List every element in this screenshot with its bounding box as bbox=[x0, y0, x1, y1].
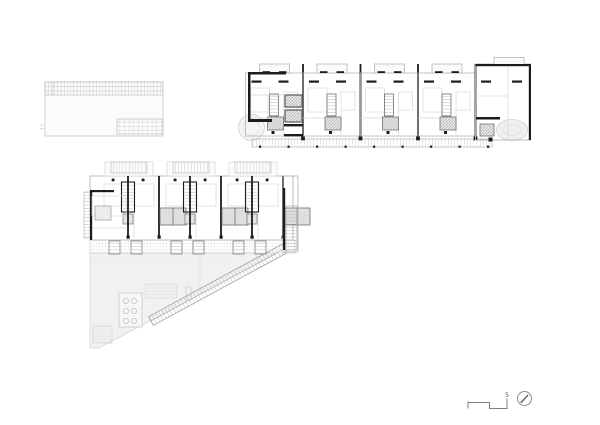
ground-floor-plan bbox=[84, 162, 310, 348]
roof-hatch-band bbox=[45, 82, 163, 95]
spiral-ramp-right bbox=[497, 120, 528, 141]
scale-bar bbox=[468, 399, 507, 409]
side-stair bbox=[286, 206, 297, 250]
dwelling-unit bbox=[418, 64, 477, 140]
roof-grid-block bbox=[117, 119, 163, 134]
dwelling-unit bbox=[361, 64, 420, 140]
planter-block bbox=[119, 293, 142, 327]
typical-floor-plan bbox=[239, 58, 532, 148]
legend: 5 bbox=[468, 391, 532, 409]
spiral-ramp-left bbox=[239, 115, 265, 141]
edge-balcony bbox=[84, 192, 90, 238]
north-arrow-icon bbox=[518, 392, 532, 406]
roof-plan bbox=[40, 82, 163, 136]
scale-label: 5 bbox=[505, 391, 509, 399]
drawing-sheet: 5 bbox=[0, 0, 600, 425]
plaza-grid-patch bbox=[93, 326, 112, 343]
dwelling-unit bbox=[303, 64, 362, 140]
floor-plan-drawing: 5 bbox=[0, 0, 600, 425]
